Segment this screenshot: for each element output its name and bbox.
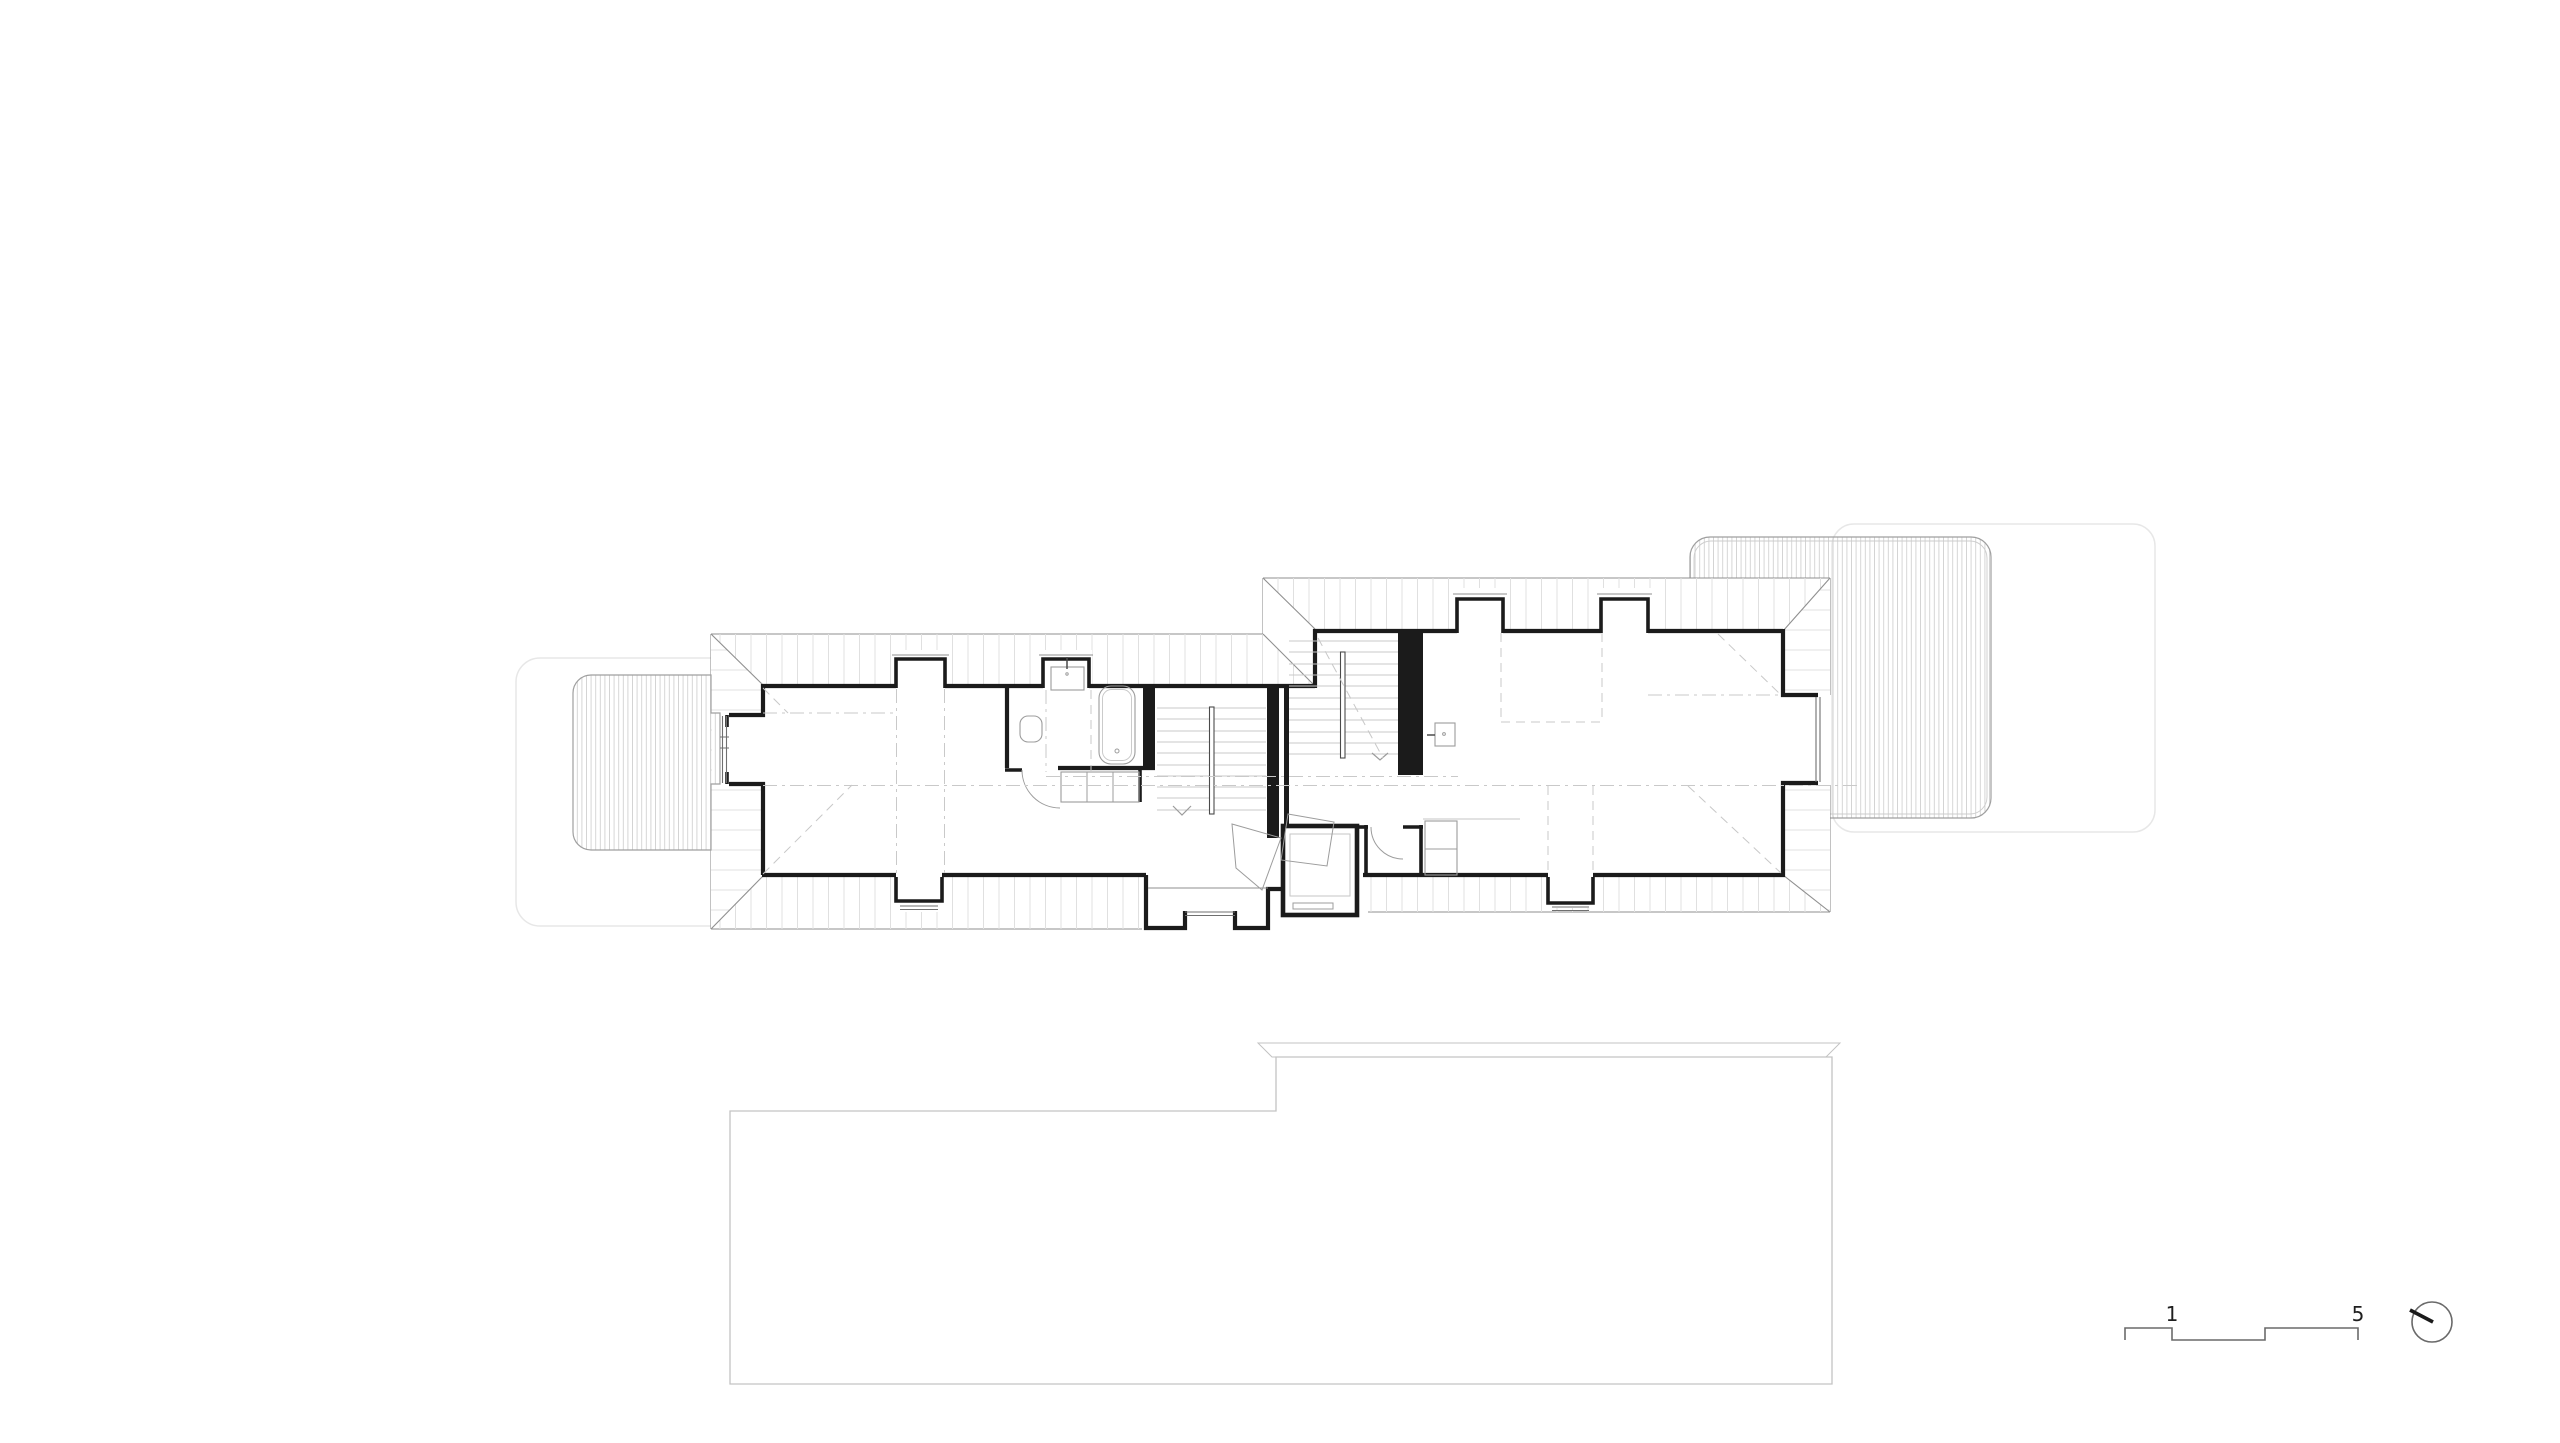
hatch-band-top-left bbox=[711, 634, 1313, 686]
lower-level bbox=[730, 1043, 1840, 1384]
hatch-band-top-right bbox=[1263, 578, 1830, 631]
annotations: 15 bbox=[2125, 1302, 2452, 1342]
drawing-sheet: 15 bbox=[0, 0, 2560, 1443]
cutout-dormer-3 bbox=[1454, 588, 1506, 633]
vestibule bbox=[1283, 826, 1357, 915]
scale-label-end: 5 bbox=[2352, 1302, 2365, 1326]
hatch-band-bottom-right bbox=[1368, 875, 1830, 912]
cutout-dormer-4 bbox=[1598, 588, 1651, 633]
scale-bar bbox=[2125, 1328, 2358, 1340]
bath-corridor-wall bbox=[1143, 686, 1155, 768]
cutout-right-bay bbox=[1783, 695, 1831, 785]
cutout-dormer-1 bbox=[893, 650, 950, 688]
handrail-right bbox=[1341, 652, 1346, 758]
lower-roof-band bbox=[1258, 1043, 1840, 1057]
handrail-left bbox=[1210, 707, 1215, 814]
stair-wall-a bbox=[1267, 686, 1279, 838]
left-deck bbox=[573, 675, 720, 850]
floor-plan-svg: 15 bbox=[0, 0, 2560, 1443]
deck-left bbox=[573, 675, 720, 850]
lower-floor-outline bbox=[730, 1057, 1832, 1384]
scale-label-start: 1 bbox=[2166, 1302, 2179, 1326]
stair-sidewall bbox=[1398, 631, 1423, 775]
